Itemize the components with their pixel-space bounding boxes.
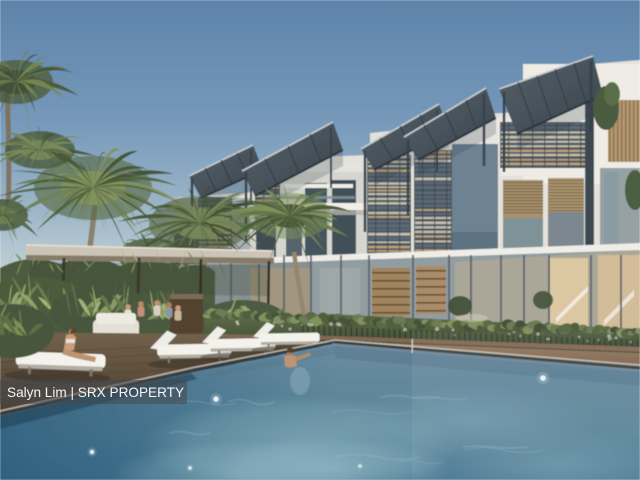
svg-text:Salyn Lim | SRX PROPERTY: Salyn Lim | SRX PROPERTY xyxy=(7,385,184,400)
